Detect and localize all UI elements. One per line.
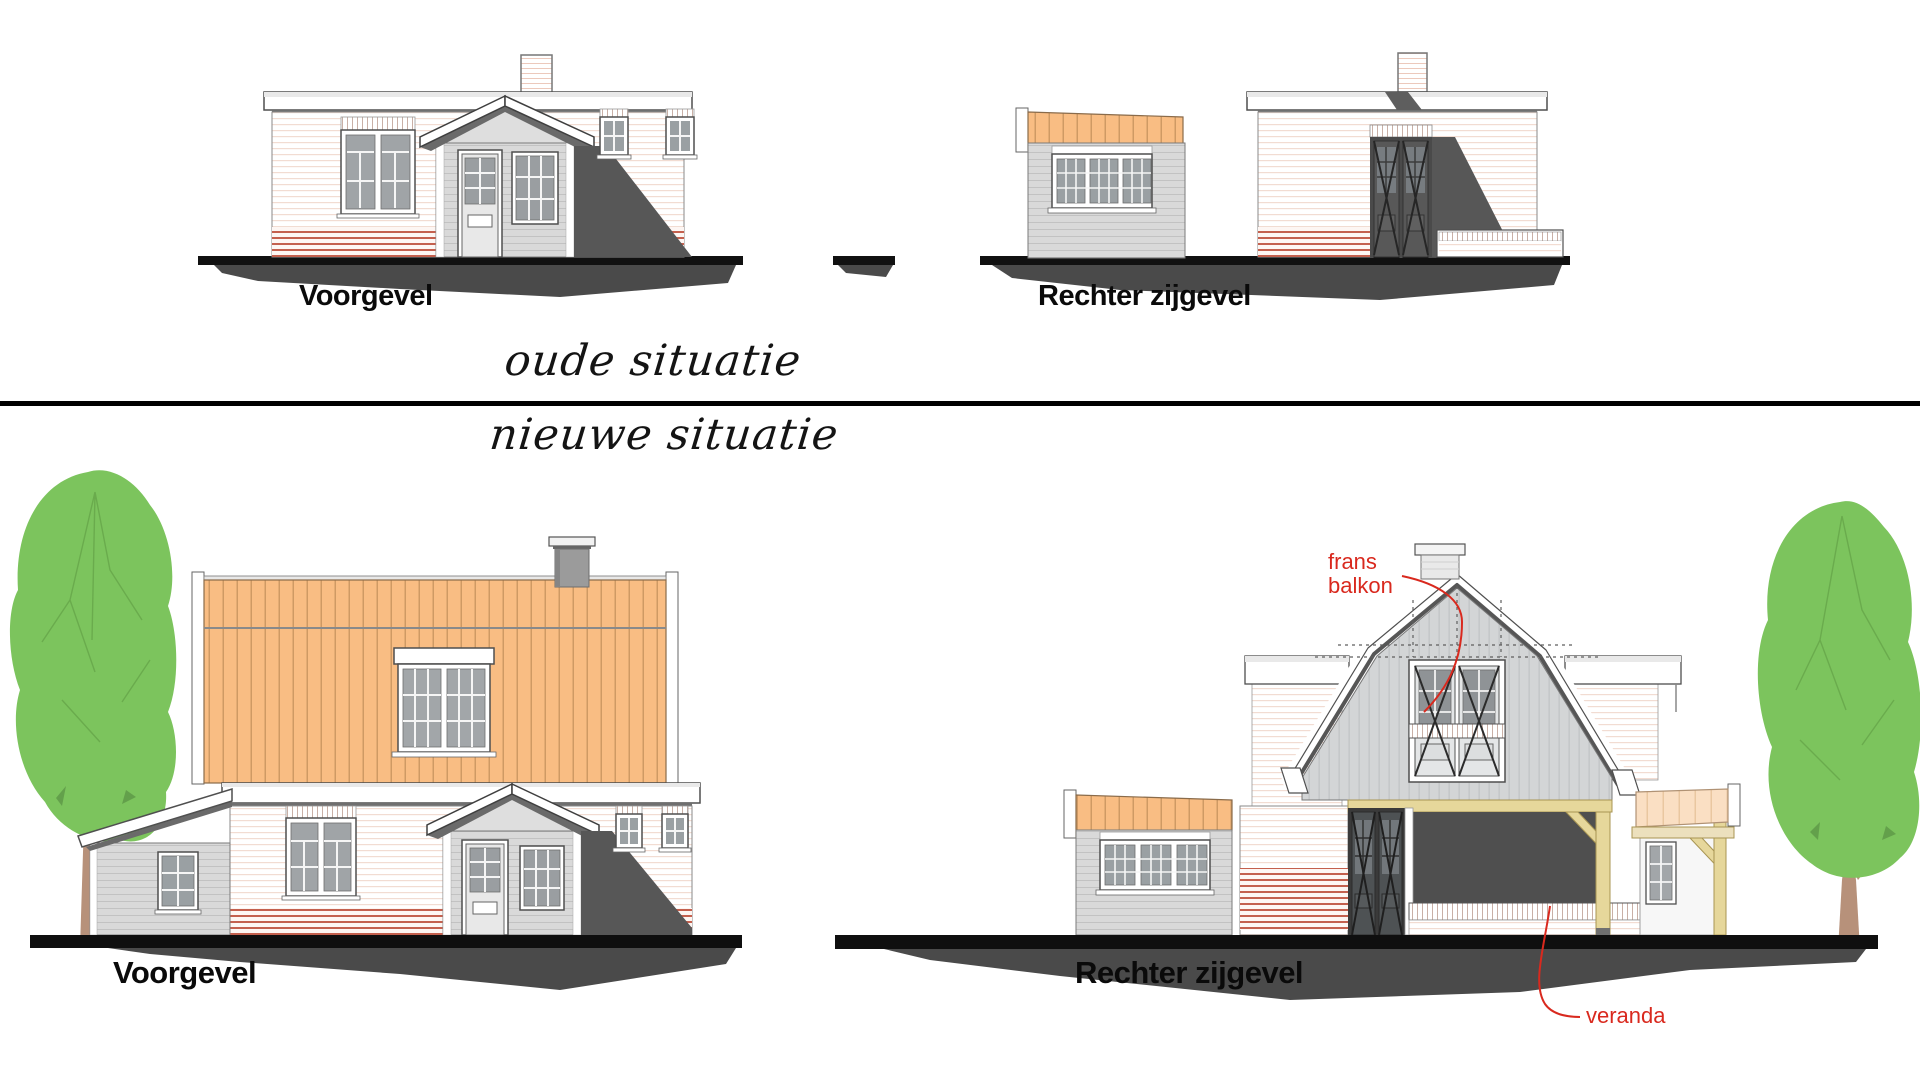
big-window bbox=[282, 806, 360, 900]
veranda-window bbox=[1646, 842, 1676, 904]
old-side-elevation bbox=[833, 53, 1570, 300]
veranda-structure bbox=[1632, 784, 1740, 935]
balcony-railing bbox=[1409, 724, 1505, 738]
side-extension bbox=[1016, 108, 1185, 258]
small-window-2 bbox=[663, 109, 697, 159]
back-door bbox=[1370, 125, 1432, 257]
label-old-voorgevel: Voorgevel bbox=[299, 280, 433, 313]
annotation-veranda: veranda bbox=[1586, 1004, 1666, 1028]
dormer-window bbox=[392, 648, 496, 757]
extension-window bbox=[1048, 146, 1156, 213]
annotation-frans-balkon: frans balkon bbox=[1328, 550, 1414, 598]
old-front-elevation bbox=[198, 55, 743, 297]
new-situation-title: nieuwe situatie bbox=[487, 410, 782, 460]
drawing-canvas bbox=[0, 0, 1920, 1080]
small-window-2 bbox=[659, 806, 691, 852]
front-door bbox=[458, 150, 502, 257]
small-window-1 bbox=[613, 806, 645, 852]
divider-line bbox=[0, 401, 1920, 406]
label-new-rechter-zijgevel: Rechter zijgevel bbox=[1075, 955, 1303, 991]
addition-window bbox=[155, 852, 201, 914]
plan-sheet: oude situatie nieuwe situatie Voorgevel … bbox=[0, 0, 1920, 1080]
planter bbox=[1437, 230, 1563, 257]
tree-crown bbox=[10, 470, 176, 841]
ground-line bbox=[833, 256, 895, 265]
new-front-elevation bbox=[10, 470, 742, 990]
chimney bbox=[549, 537, 595, 587]
ground-line bbox=[835, 935, 1878, 949]
chimney bbox=[1398, 53, 1427, 92]
veranda-roof bbox=[1636, 789, 1728, 827]
label-old-rechter-zijgevel: Rechter zijgevel bbox=[1038, 280, 1251, 313]
ground-line bbox=[30, 935, 742, 948]
ground-shadow bbox=[884, 949, 1866, 1000]
ground-shadow bbox=[214, 265, 736, 297]
chimney bbox=[521, 55, 552, 93]
ground-shadow bbox=[838, 265, 893, 277]
label-new-voorgevel: Voorgevel bbox=[113, 955, 256, 991]
side-extension bbox=[1064, 790, 1232, 935]
wall-left-of-door bbox=[1240, 806, 1348, 935]
tree-right bbox=[1758, 501, 1920, 950]
old-situation-title: oude situatie bbox=[502, 336, 777, 386]
porch-window bbox=[520, 846, 564, 910]
front-door bbox=[462, 840, 508, 935]
letter-plate bbox=[468, 215, 492, 227]
eaves bbox=[222, 783, 700, 807]
extension-window bbox=[1096, 832, 1214, 895]
small-window-1 bbox=[597, 109, 631, 159]
left-window bbox=[337, 117, 419, 218]
porch-post bbox=[1596, 812, 1610, 935]
porch-window bbox=[512, 152, 558, 224]
veranda-post bbox=[1714, 822, 1726, 935]
chimney bbox=[1415, 544, 1465, 579]
letter-plate bbox=[473, 902, 497, 914]
french-balcony-doors bbox=[1409, 660, 1505, 782]
veranda-fascia bbox=[1632, 827, 1734, 838]
roof bbox=[1247, 92, 1547, 114]
ground-door bbox=[1348, 808, 1413, 935]
